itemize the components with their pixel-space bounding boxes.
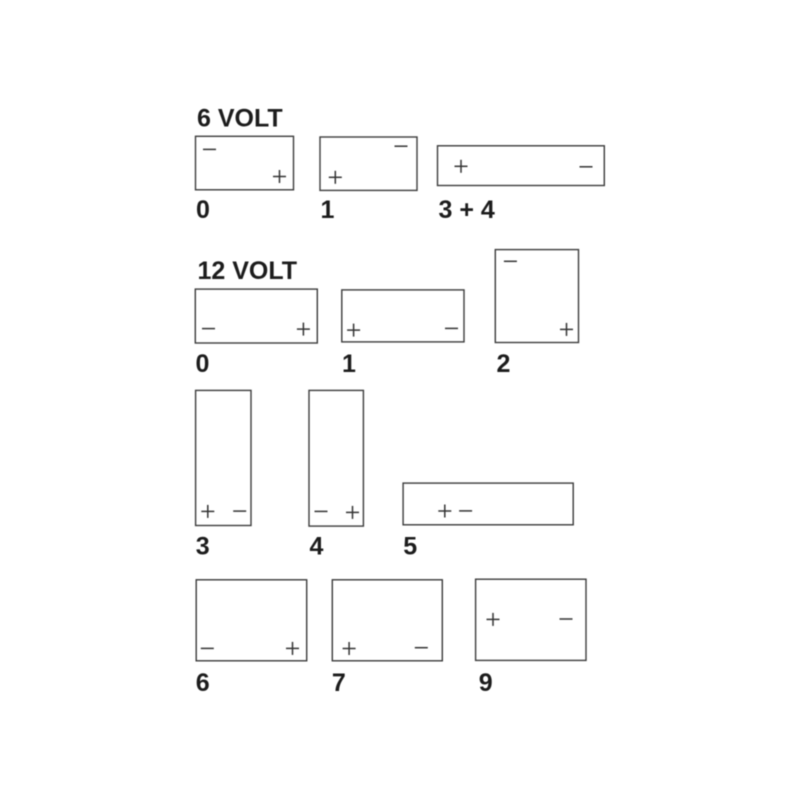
svg-text:5: 5 (403, 533, 417, 561)
svg-text:7: 7 (332, 669, 346, 697)
svg-text:6 VOLT: 6 VOLT (197, 104, 283, 132)
svg-text:3 + 4: 3 + 4 (439, 196, 495, 224)
svg-text:1: 1 (321, 196, 335, 224)
svg-text:12 VOLT: 12 VOLT (198, 257, 298, 285)
svg-text:1: 1 (342, 350, 356, 378)
svg-text:2: 2 (497, 350, 511, 378)
svg-text:3: 3 (196, 533, 210, 561)
svg-text:9: 9 (479, 669, 493, 697)
svg-text:4: 4 (310, 533, 324, 561)
svg-text:0: 0 (196, 196, 210, 224)
svg-text:0: 0 (196, 350, 210, 378)
svg-text:6: 6 (196, 669, 210, 697)
